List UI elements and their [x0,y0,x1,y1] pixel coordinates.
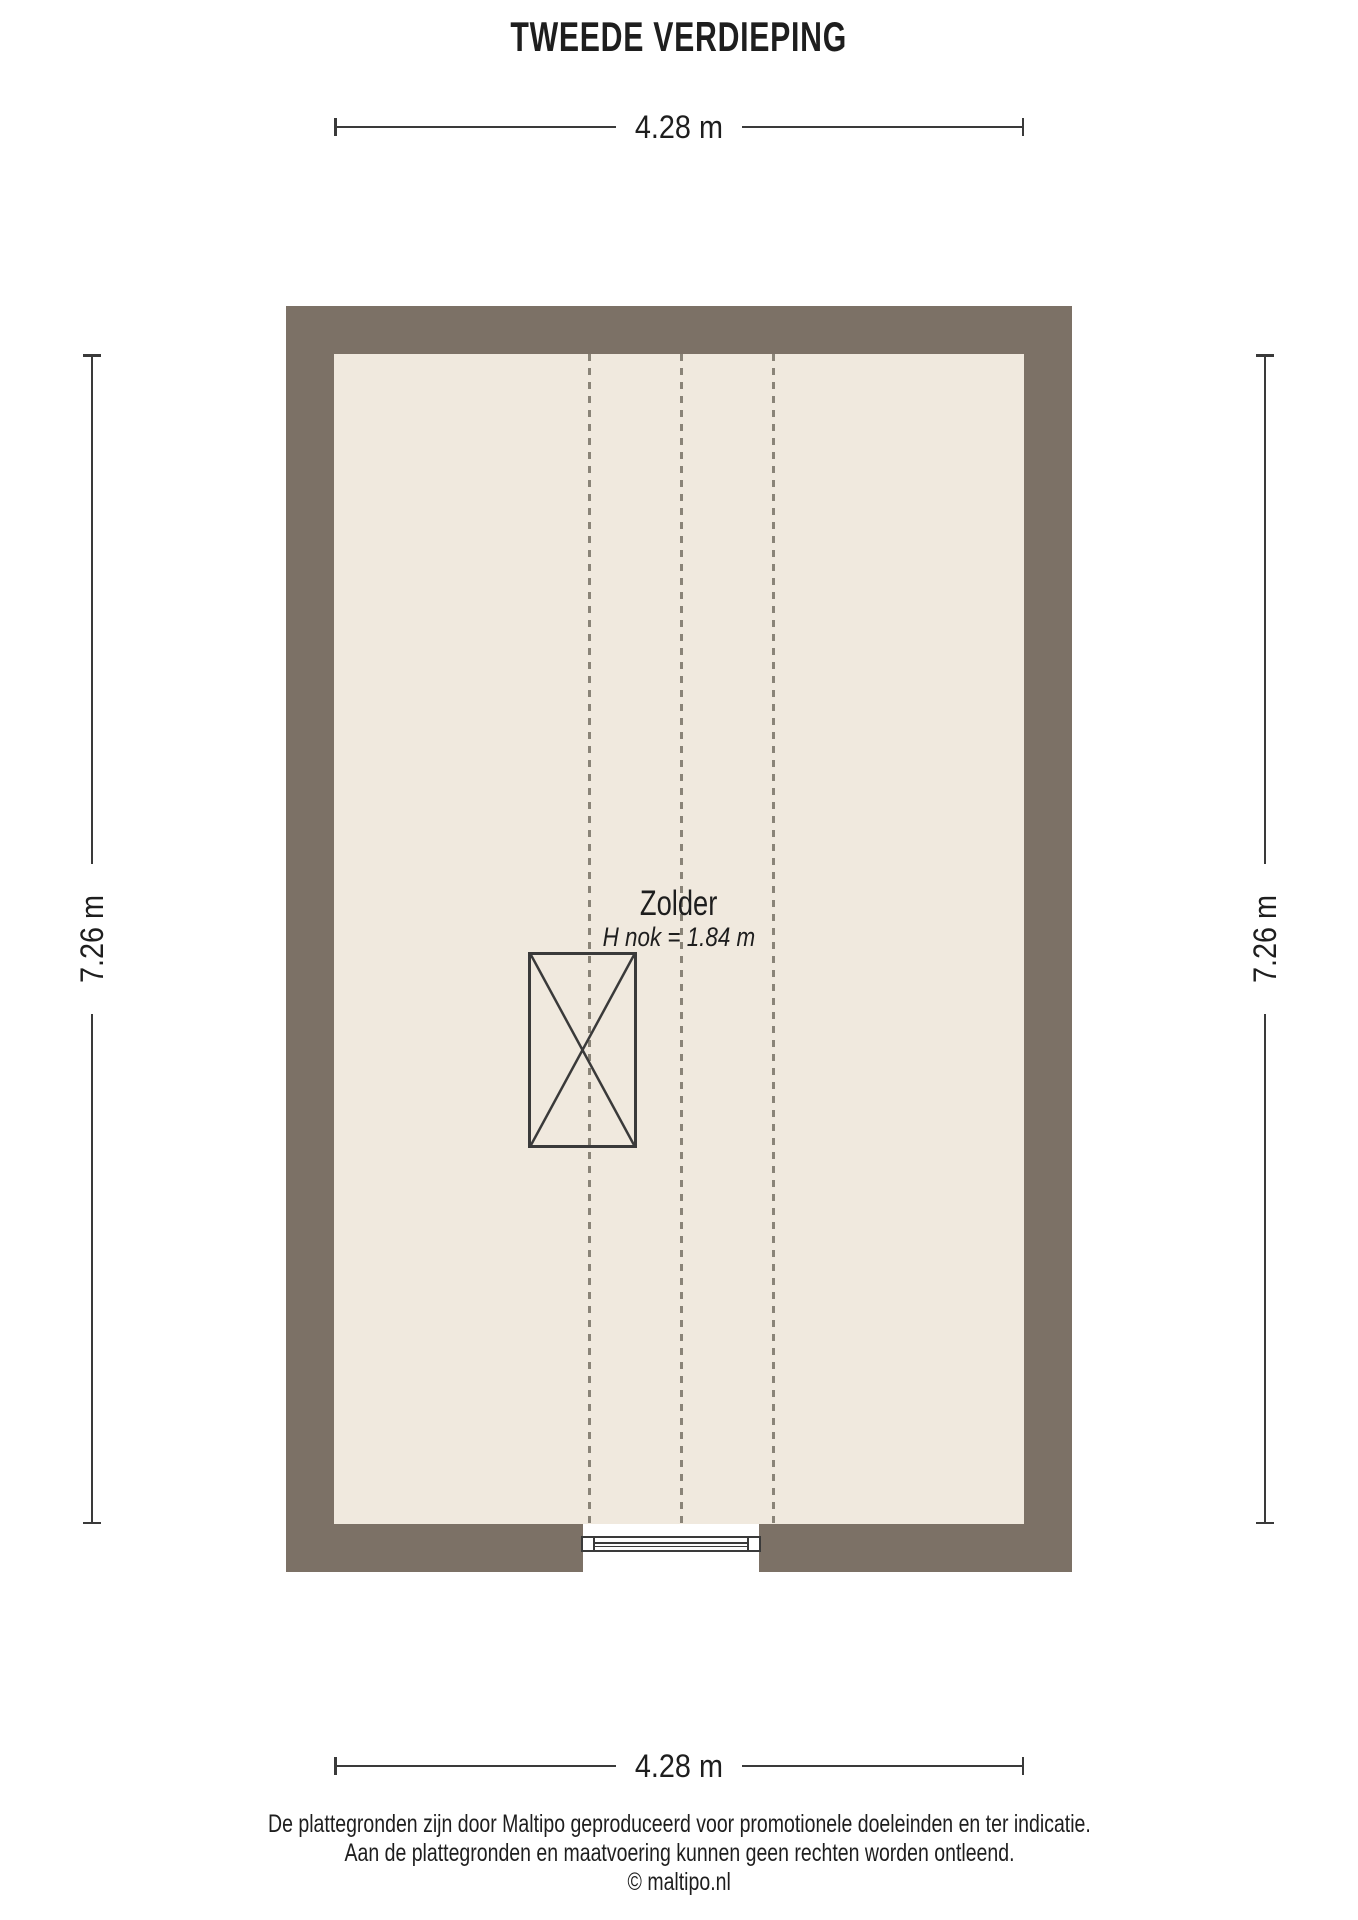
footer-disclaimer: De plattegronden zijn door Maltipo gepro… [0,1810,1358,1897]
room-height-note: H nok = 1.84 m [334,922,1024,952]
window-glazing-line [595,1546,747,1548]
dimension-tick [1022,1757,1025,1775]
page-title-text: TWEEDE VERDIEPING [511,14,848,60]
void-cross-icon [531,955,634,1145]
disclaimer-line-2: Aan de plattegronden en maatvoering kunn… [0,1839,1358,1868]
dimension-line [337,1765,617,1768]
dimension-right: 7.26 m [1245,354,1285,1524]
dimension-tick [1256,1522,1274,1525]
dimension-line [742,126,1022,129]
floorplan-page: TWEEDE VERDIEPING 4.28 m 7.26 m 7.26 m [0,0,1358,1920]
dimension-line [1264,1014,1267,1522]
attic-room-floor: Zolder H nok = 1.84 m [334,354,1024,1524]
window-glazing-line [595,1542,747,1544]
window-symbol [581,1536,761,1552]
disclaimer-line-1: De plattegronden zijn door Maltipo gepro… [0,1810,1358,1839]
dimension-label-right: 7.26 m [1245,864,1285,1014]
exterior-wall: Zolder H nok = 1.84 m [286,306,1072,1572]
stairwell-void [528,952,637,1148]
copyright-line: © maltipo.nl [0,1868,1358,1897]
dimension-tick [1022,118,1025,136]
dimension-label-bottom: 4.28 m [622,1748,735,1784]
dimension-top: 4.28 m [334,107,1024,147]
dimension-line [742,1765,1022,1768]
window-frame-left [593,1538,595,1550]
dimension-tick [83,1522,101,1525]
dimension-line [1264,357,1267,865]
dimension-label-left: 7.26 m [72,864,112,1014]
dimension-line [91,357,94,865]
window-frame-right [747,1538,749,1550]
dimension-line [91,1014,94,1522]
room-label-group: Zolder H nok = 1.84 m [334,885,1024,952]
page-title: TWEEDE VERDIEPING [0,14,1358,60]
dimension-left: 7.26 m [72,354,112,1524]
dimension-label-top: 4.28 m [622,109,735,145]
dimension-line [337,126,617,129]
room-name: Zolder [334,885,1024,922]
dimension-bottom: 4.28 m [334,1746,1024,1786]
